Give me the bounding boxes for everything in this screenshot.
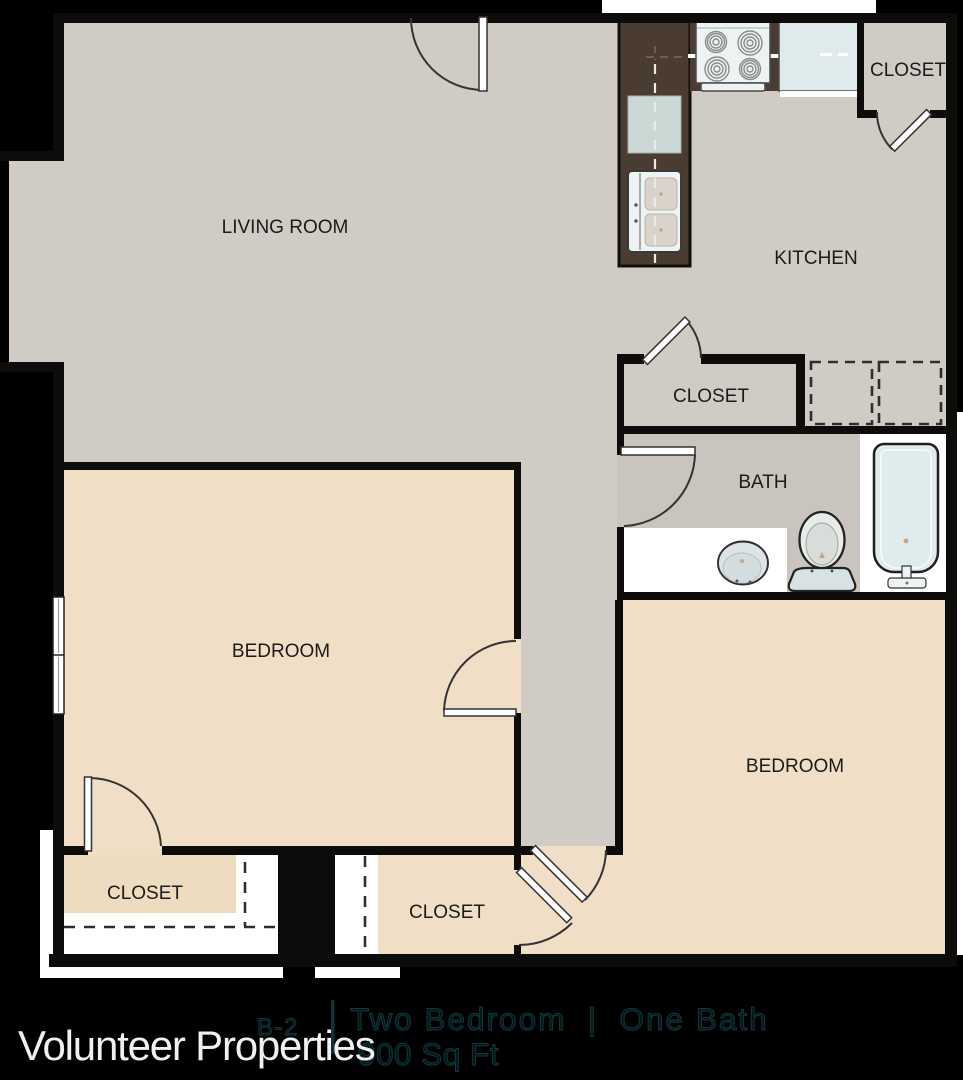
svg-text:Two Bedroom | One Bath: Two Bedroom | One Bath	[350, 1001, 769, 1037]
svg-text:CLOSET: CLOSET	[870, 60, 946, 81]
svg-text:900 Sq Ft: 900 Sq Ft	[358, 1036, 499, 1072]
svg-text:BEDROOM: BEDROOM	[746, 756, 844, 777]
svg-text:BATH: BATH	[738, 472, 787, 493]
svg-text:BEDROOM: BEDROOM	[232, 641, 330, 662]
svg-text:LIVING ROOM: LIVING ROOM	[222, 217, 349, 238]
svg-text:CLOSET: CLOSET	[673, 386, 749, 407]
svg-text:CLOSET: CLOSET	[107, 883, 183, 904]
svg-text:Volunteer Properties: Volunteer Properties	[18, 1022, 375, 1069]
svg-text:CLOSET: CLOSET	[409, 902, 485, 923]
svg-text:KITCHEN: KITCHEN	[774, 248, 857, 269]
